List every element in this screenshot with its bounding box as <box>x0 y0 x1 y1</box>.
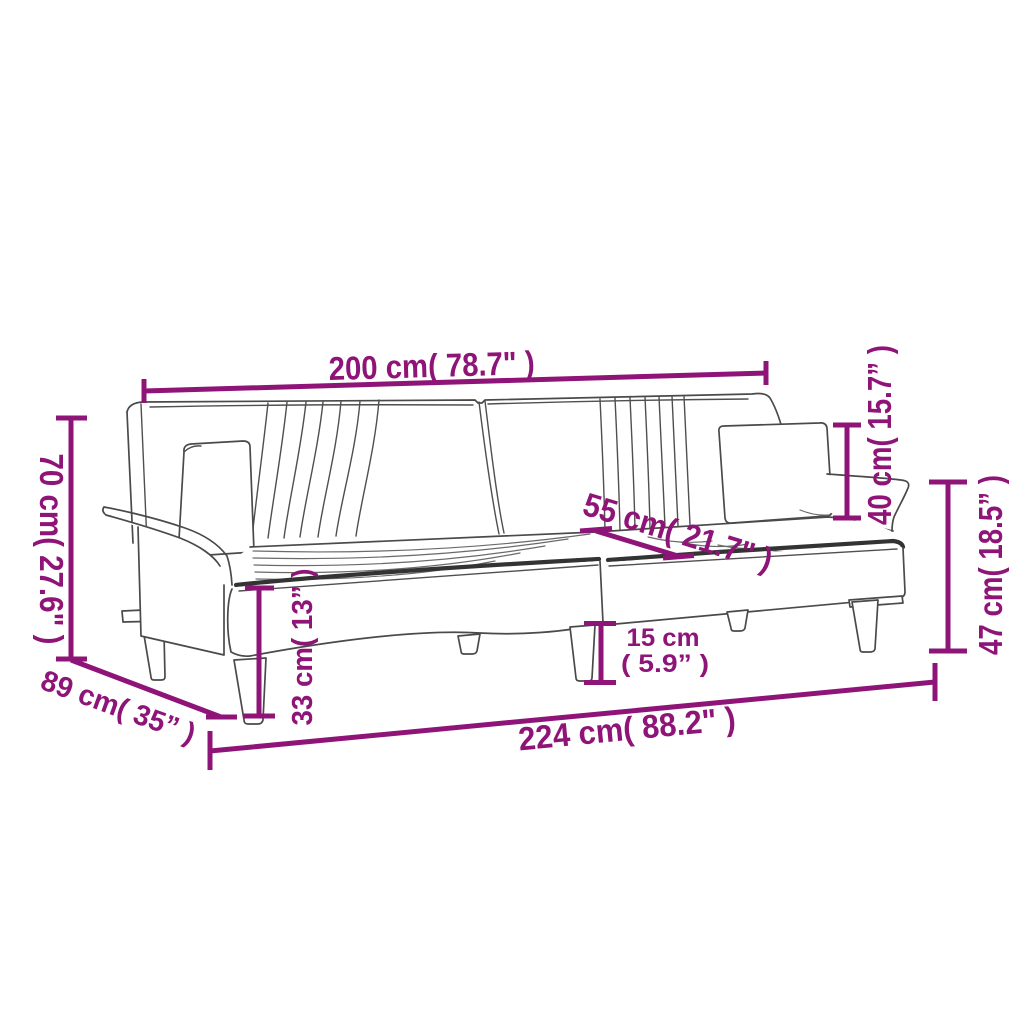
svg-text:70 cm( 27.6" ): 70 cm( 27.6" ) <box>33 454 70 645</box>
svg-text:15 cm: 15 cm <box>627 624 700 652</box>
svg-text:40 cm( 15.7” ): 40 cm( 15.7” ) <box>861 345 898 525</box>
svg-text:33 cm( 13” ): 33 cm( 13” ) <box>287 569 319 726</box>
svg-text:( 5.9” ): ( 5.9” ) <box>621 650 709 678</box>
svg-text:200 cm( 78.7" ): 200 cm( 78.7" ) <box>328 344 535 387</box>
svg-text:47 cm( 18.5” ): 47 cm( 18.5” ) <box>972 475 1009 655</box>
